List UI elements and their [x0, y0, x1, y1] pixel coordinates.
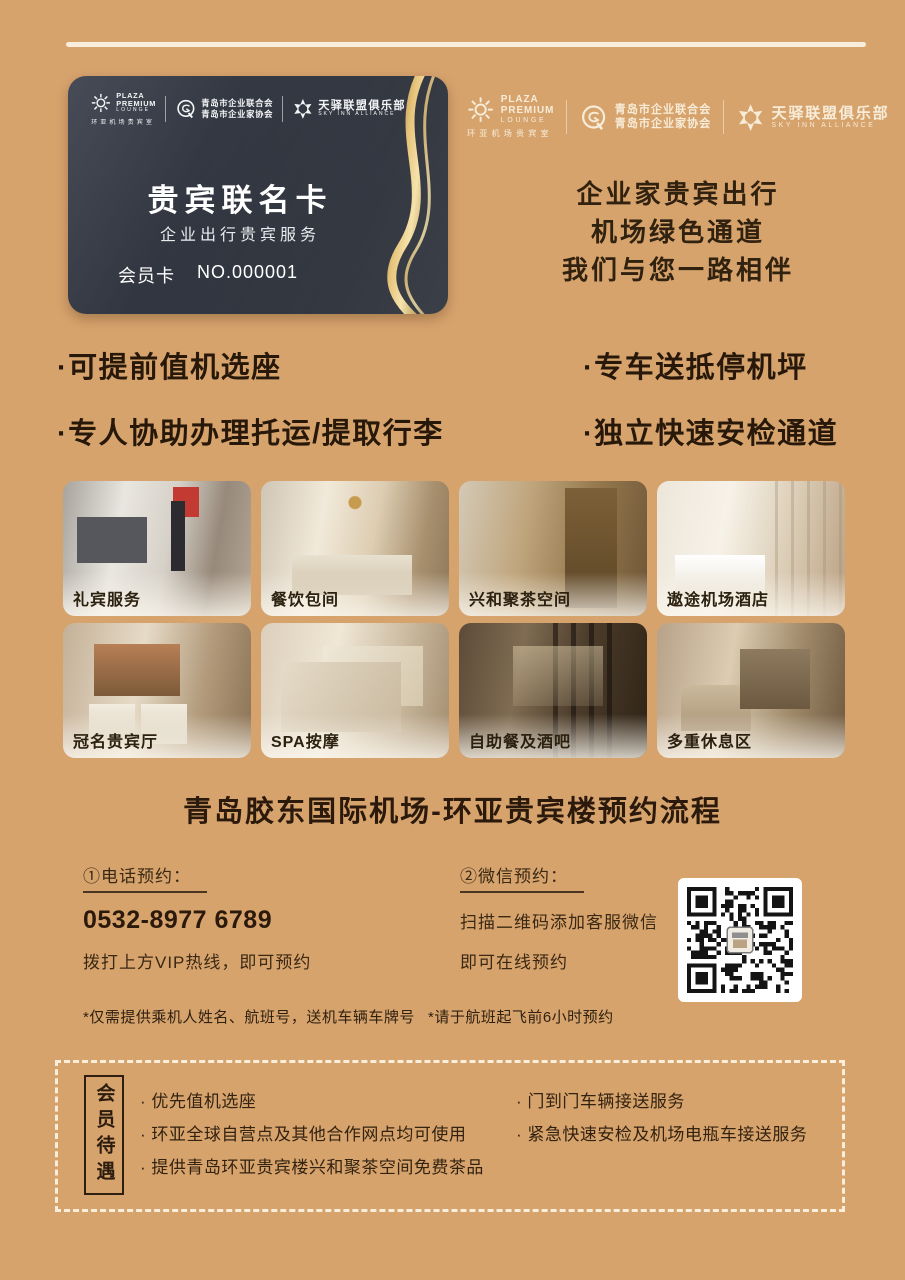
qingdao-line2: 青岛市企业家协会 [201, 109, 273, 120]
plaza-line3: LOUNGE [501, 117, 555, 124]
top-decorative-line [66, 42, 866, 47]
feature-item: ·可提前值机选座 [57, 348, 444, 414]
sky-inn-sub: SKY INN ALLIANCE [771, 122, 889, 130]
plaza-premium-wordmark: PLAZA PREMIUM LOUNGE [116, 92, 156, 113]
feature-list-right: ·专车送抵停机坪 ·独立快速安检通道 [583, 348, 838, 480]
wechat-booking-line: 即可在线预约 [460, 948, 658, 973]
plaza-premium-flower-icon [90, 92, 112, 114]
booking-note: *请于航班起飞前6小时预约 [428, 1006, 614, 1027]
sky-inn-alliance-logo: 天驿联盟俱乐部 SKY INN ALLIANCE [736, 103, 889, 132]
sky-inn-sub: SKY INN ALLIANCE [318, 112, 406, 118]
wechat-booking-column: ②微信预约： 扫描二维码添加客服微信 即可在线预约 [460, 862, 658, 973]
feature-list-left: ·可提前值机选座 ·专人协助办理托运/提取行李 [57, 348, 444, 480]
benefits-list-left: · 优先值机选座 · 环亚全球自营点及其他合作网点均可使用 · 提供青岛环亚贵宾… [140, 1091, 484, 1190]
benefit-item: · 优先值机选座 [140, 1091, 484, 1124]
gallery-photo-concierge: 礼宾服务 [63, 481, 251, 616]
benefit-item: · 环亚全球自营点及其他合作网点均可使用 [140, 1124, 484, 1157]
booking-section-title: 青岛胶东国际机场-环亚贵宾楼预约流程 [0, 788, 905, 830]
plaza-chinese-sub: 环亚机场贵宾室 [467, 128, 553, 139]
benefit-item: · 提供青岛环亚贵宾楼兴和聚茶空间免费茶品 [140, 1157, 484, 1190]
wechat-booking-label: ②微信预约： [460, 862, 584, 893]
logo-divider [723, 100, 724, 134]
member-card-number: NO.000001 [197, 262, 298, 288]
plaza-chinese-sub: 环亚机场贵宾室 [91, 117, 155, 126]
sky-inn-star-icon [736, 103, 765, 132]
qingdao-line1: 青岛市企业联合会 [615, 103, 712, 118]
gallery-photo-spa: SPA按摩 [261, 623, 449, 758]
member-card-label: 会员卡 [118, 262, 175, 288]
feature-item: ·专人协助办理托运/提取行李 [57, 414, 444, 480]
photo-caption: SPA按摩 [271, 728, 340, 752]
feature-item: ·专车送抵停机坪 [583, 348, 838, 414]
photo-gallery: 礼宾服务 餐饮包间 兴和聚茶空间 遨途机场酒店 冠名贵宾厅 SPA按摩 自助餐及… [63, 481, 845, 758]
logo-divider [165, 96, 166, 122]
slogan-line: 企业家贵宾出行 [468, 176, 888, 214]
gallery-photo-dining-room: 餐饮包间 [261, 481, 449, 616]
gallery-photo-rest-area: 多重休息区 [657, 623, 845, 758]
plaza-premium-logo: PLAZA PREMIUM LOUNGE 环亚机场贵宾室 [90, 92, 156, 126]
gallery-photo-vip-hall: 冠名贵宾厅 [63, 623, 251, 758]
card-title: 贵宾联名卡 [68, 175, 412, 220]
wechat-booking-line: 扫描二维码添加客服微信 [460, 908, 658, 933]
wechat-qr-code [678, 878, 802, 1002]
sky-inn-star-icon [292, 98, 314, 120]
qingdao-wordmark: 青岛市企业联合会 青岛市企业家协会 [201, 98, 273, 120]
phone-booking-column: ①电话预约： 0532-8977 6789 拨打上方VIP热线，即可预约 [83, 862, 311, 973]
sky-inn-wordmark: 天驿联盟俱乐部 SKY INN ALLIANCE [318, 100, 406, 119]
photo-caption: 遨途机场酒店 [667, 586, 769, 610]
flyer-page: PLAZA PREMIUM LOUNGE 环亚机场贵宾室 [0, 0, 905, 1280]
card-logo-row: PLAZA PREMIUM LOUNGE 环亚机场贵宾室 [90, 92, 406, 126]
header-slogans: 企业家贵宾出行 机场绿色通道 我们与您一路相伴 [468, 176, 888, 290]
plaza-premium-logo: PLAZA PREMIUM LOUNGE 环亚机场贵宾室 [466, 95, 555, 139]
benefit-item: · 门到门车辆接送服务 [516, 1091, 807, 1124]
qingdao-association-logo: 青岛市企业联合会 青岛市企业家协会 [579, 103, 711, 132]
sky-inn-name: 天驿联盟俱乐部 [771, 105, 889, 122]
member-benefits-box: 会员待遇 · 优先值机选座 · 环亚全球自营点及其他合作网点均可使用 · 提供青… [55, 1060, 845, 1212]
slogan-line: 我们与您一路相伴 [468, 252, 888, 290]
photo-caption: 兴和聚茶空间 [469, 586, 571, 610]
qingdao-wordmark: 青岛市企业联合会 青岛市企业家协会 [615, 103, 712, 132]
feature-item: ·独立快速安检通道 [583, 414, 838, 480]
card-subtitle: 企业出行贵宾服务 [68, 221, 412, 245]
gallery-photo-tea-space: 兴和聚茶空间 [459, 481, 647, 616]
plaza-premium-wordmark: PLAZA PREMIUM LOUNGE [501, 95, 555, 124]
photo-caption: 餐饮包间 [271, 586, 339, 610]
phone-booking-label: ①电话预约： [83, 862, 207, 893]
booking-note: *仅需提供乘机人姓名、航班号，送机车辆车牌号 [83, 1006, 415, 1027]
qingdao-association-logo: 青岛市企业联合会 青岛市企业家协会 [175, 98, 273, 120]
logo-divider [566, 100, 567, 134]
plaza-line2: PREMIUM [501, 106, 555, 117]
vip-hotline-number: 0532-8977 6789 [83, 906, 311, 935]
sky-inn-wordmark: 天驿联盟俱乐部 SKY INN ALLIANCE [771, 105, 889, 130]
logo-divider [282, 96, 283, 122]
slogan-line: 机场绿色通道 [468, 214, 888, 252]
qingdao-line1: 青岛市企业联合会 [201, 98, 273, 109]
benefit-item: · 紧急快速安检及机场电瓶车接送服务 [516, 1124, 807, 1157]
qr-code-graphic [687, 887, 793, 993]
gallery-photo-airport-hotel: 遨途机场酒店 [657, 481, 845, 616]
card-member-row: 会员卡 NO.000001 [118, 262, 298, 288]
photo-caption: 多重休息区 [667, 728, 752, 752]
member-benefits-label: 会员待遇 [84, 1075, 124, 1195]
benefits-list-right: · 门到门车辆接送服务 · 紧急快速安检及机场电瓶车接送服务 [516, 1091, 807, 1157]
header-partner-logos: PLAZA PREMIUM LOUNGE 环亚机场贵宾室 [450, 95, 905, 139]
photo-caption: 礼宾服务 [73, 586, 141, 610]
phone-booking-desc: 拨打上方VIP热线，即可预约 [83, 948, 311, 973]
plaza-premium-flower-icon [466, 95, 495, 124]
qingdao-q-icon [175, 98, 197, 120]
qingdao-q-icon [579, 103, 608, 132]
vip-membership-card: PLAZA PREMIUM LOUNGE 环亚机场贵宾室 [68, 76, 448, 314]
qingdao-line2: 青岛市企业家协会 [615, 117, 712, 132]
photo-caption: 冠名贵宾厅 [73, 728, 158, 752]
plaza-line3: LOUNGE [116, 108, 156, 114]
photo-caption: 自助餐及酒吧 [469, 728, 571, 752]
sky-inn-alliance-logo: 天驿联盟俱乐部 SKY INN ALLIANCE [292, 98, 406, 120]
gallery-photo-buffet-bar: 自助餐及酒吧 [459, 623, 647, 758]
